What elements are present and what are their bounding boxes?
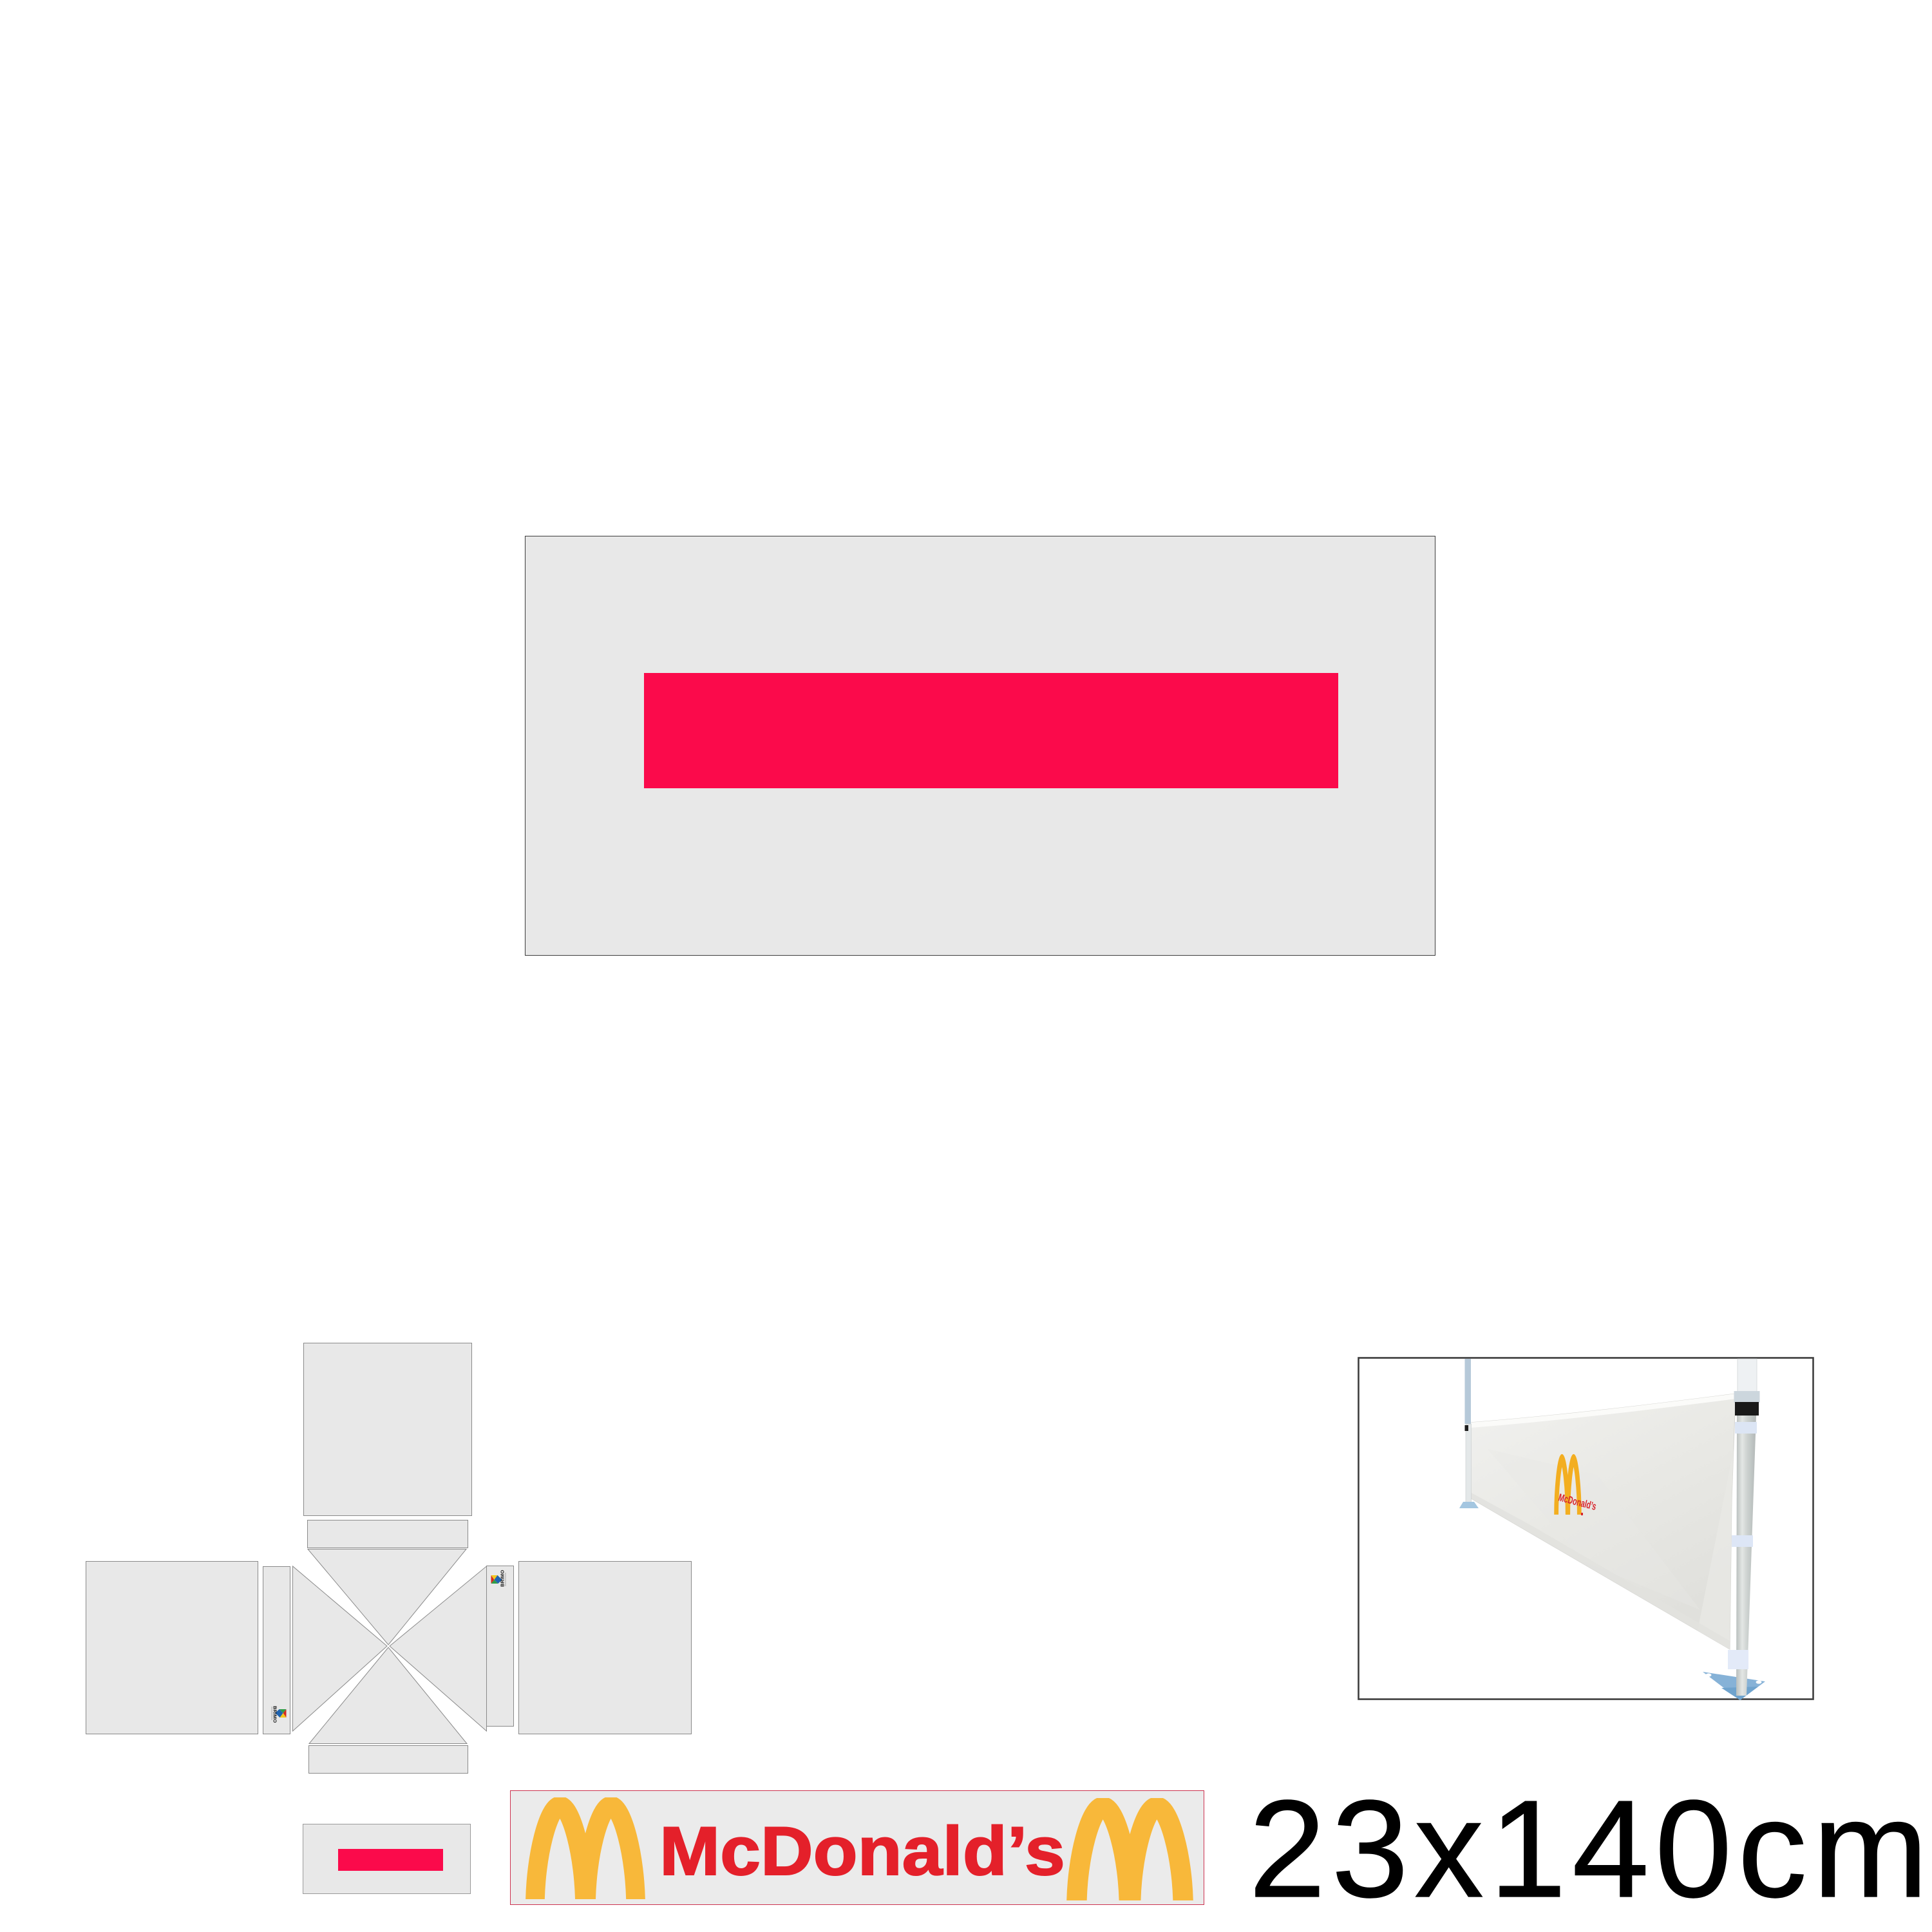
svg-text:BRIMO: BRIMO xyxy=(500,1570,506,1587)
svg-text:BRIMO: BRIMO xyxy=(272,1706,278,1723)
